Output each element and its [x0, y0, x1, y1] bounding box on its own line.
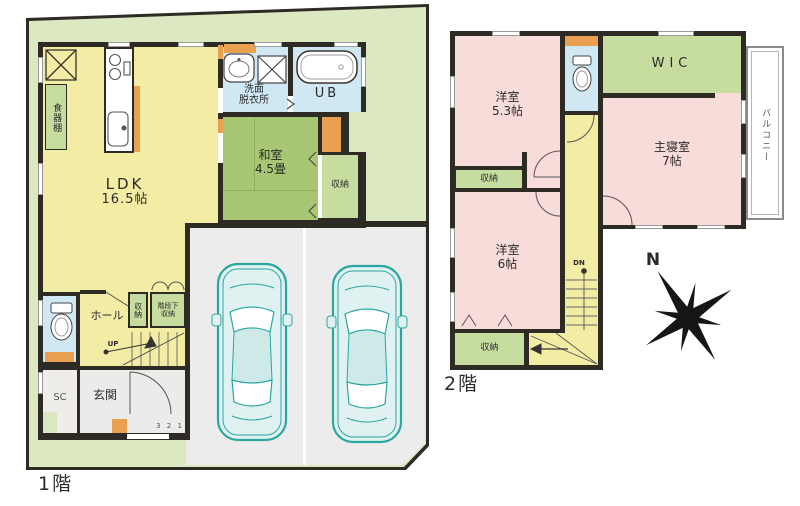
wic-label: WIC [603, 55, 741, 73]
entrance-label: 玄関 [84, 388, 126, 404]
washitsu-closet-label: 収納 [322, 178, 358, 192]
up-label: UP [103, 339, 123, 349]
chevron-marks [462, 315, 512, 326]
hall-label: ホール [84, 308, 130, 324]
car-icon [327, 266, 407, 442]
washbasin-icon [224, 54, 254, 82]
hall-closet-label: 収納 [130, 295, 146, 325]
room6-label: 洋室 6帖 [455, 238, 560, 278]
stove-icon [110, 55, 131, 80]
plan-linework [0, 0, 800, 506]
closet-bottom-label: 収納 [455, 340, 524, 356]
balcony-label: バルコニー [751, 90, 779, 180]
entry-steps-label: 3 2 1 [152, 421, 188, 431]
floor-plan-page: LDK 16.5帖 食器棚 洗面脱衣所 UB 和室 4.5畳 収納 ホール 収納… [0, 0, 800, 506]
dn-label: DN [568, 258, 590, 268]
compass-n-label: N [642, 251, 664, 271]
dish-shelf-label: 食器棚 [45, 88, 67, 148]
car-icon [212, 264, 292, 440]
floor1-label: 1階 [38, 472, 98, 498]
toilet-icon [51, 303, 72, 340]
compass-icon [616, 243, 759, 387]
ldk-label: LDK 16.5帖 [60, 168, 190, 216]
shoe-closet-label: SC [47, 391, 73, 405]
double-door-marks [152, 282, 184, 290]
washroom-label: 洗面脱衣所 [223, 82, 285, 108]
front-door-arc [130, 372, 171, 414]
sink-icon [108, 112, 128, 146]
stairs-1f [123, 332, 184, 366]
closet-mid-label: 収納 [456, 172, 522, 186]
cross-box-icon [46, 50, 76, 80]
toilet-icon [573, 56, 591, 91]
floor2-label: 2階 [444, 372, 504, 398]
hall-door-line [106, 292, 128, 306]
washing-machine-icon [258, 56, 286, 83]
bath-label: UB [300, 85, 354, 103]
bathtub-icon [297, 51, 357, 83]
understairs-label: 階段下収納 [150, 295, 186, 325]
room53-label: 洋室 5.3帖 [455, 85, 560, 125]
dn-arrow [531, 269, 586, 354]
washitsu-label: 和室 4.5畳 [223, 142, 318, 184]
master-label: 主寝室 7帖 [603, 135, 741, 175]
